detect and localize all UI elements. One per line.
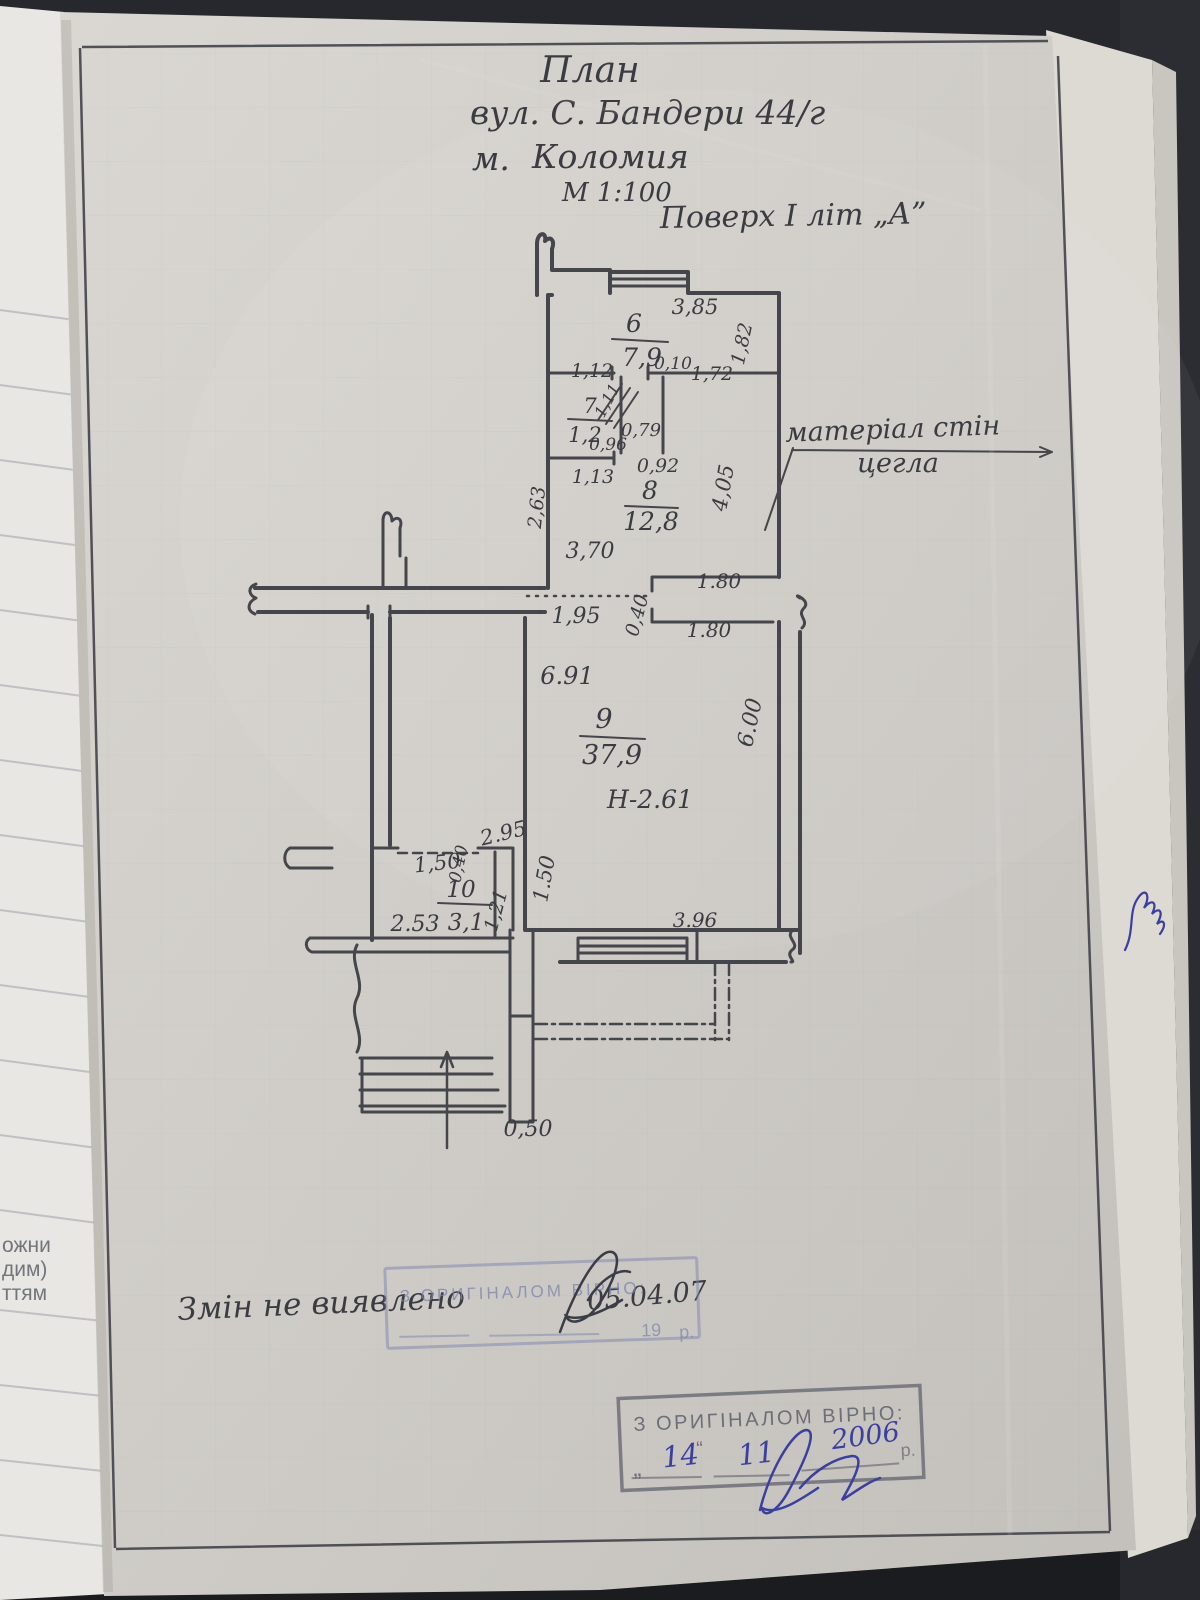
stamp-year-suffix: р. xyxy=(900,1440,916,1461)
ceiling-height-note: Н-2.61 xyxy=(606,785,693,814)
dim-2-53: 2.53 xyxy=(390,912,440,937)
address-line: вул. С. Бандери 44/г xyxy=(470,93,826,132)
city-name: Коломия xyxy=(531,137,689,176)
stamp-day-handwritten: 14 xyxy=(660,1437,701,1475)
under-page-fragment: ттям xyxy=(2,1282,47,1305)
stamp-month-handwritten: 11 xyxy=(736,1434,777,1472)
dim-0-10: 0,10 xyxy=(654,354,692,374)
plan-title: План xyxy=(539,50,640,91)
under-page-fragment: дим) xyxy=(2,1258,47,1281)
dim-0-96: 0,96 xyxy=(589,435,627,455)
dim-1-80-upper: 1.80 xyxy=(697,569,742,593)
dim-0-79: 0,79 xyxy=(621,420,661,441)
room-10-area: 3,1 xyxy=(448,910,485,936)
dim-0-92: 0,92 xyxy=(637,455,679,477)
dim-1-12: 1,12 xyxy=(571,360,613,382)
room-8-number: 8 xyxy=(642,476,658,505)
under-page-fragment: ожни xyxy=(2,1234,51,1257)
photographed-plan-document: ожни дим) ттям План xyxy=(0,0,1200,1600)
city-prefix: м. xyxy=(472,139,510,178)
room-6-number: 6 xyxy=(626,309,642,338)
dim-6-91: 6.91 xyxy=(540,662,593,690)
dim-2-63: 2,63 xyxy=(524,485,550,530)
stamp-close-quote: “ xyxy=(696,1438,704,1460)
room-9-number: 9 xyxy=(595,704,612,735)
dim-1-95: 1,95 xyxy=(552,604,601,629)
stamp-open-quote: „ xyxy=(633,1455,642,1482)
room-8-area: 12,8 xyxy=(623,507,679,536)
wall-note-line2: цегла xyxy=(857,448,939,479)
room-9-area: 37,9 xyxy=(582,740,642,771)
dim-1-80-lower: 1.80 xyxy=(687,618,732,642)
dim-3-85: 3,85 xyxy=(672,295,719,319)
dim-0-50: 0,50 xyxy=(504,1117,553,1142)
dim-1-13: 1,13 xyxy=(572,466,614,488)
dim-3-96: 3.96 xyxy=(673,908,718,932)
floor-line: Поверх І літ „А” xyxy=(659,196,927,236)
scale-line: М 1:100 xyxy=(561,178,672,208)
stamp-faded-year-suffix: р. xyxy=(679,1322,695,1343)
dim-3-70: 3,70 xyxy=(566,539,615,564)
dim-1-72: 1,72 xyxy=(691,363,733,385)
stamp-faded-year: 19 xyxy=(641,1320,662,1341)
